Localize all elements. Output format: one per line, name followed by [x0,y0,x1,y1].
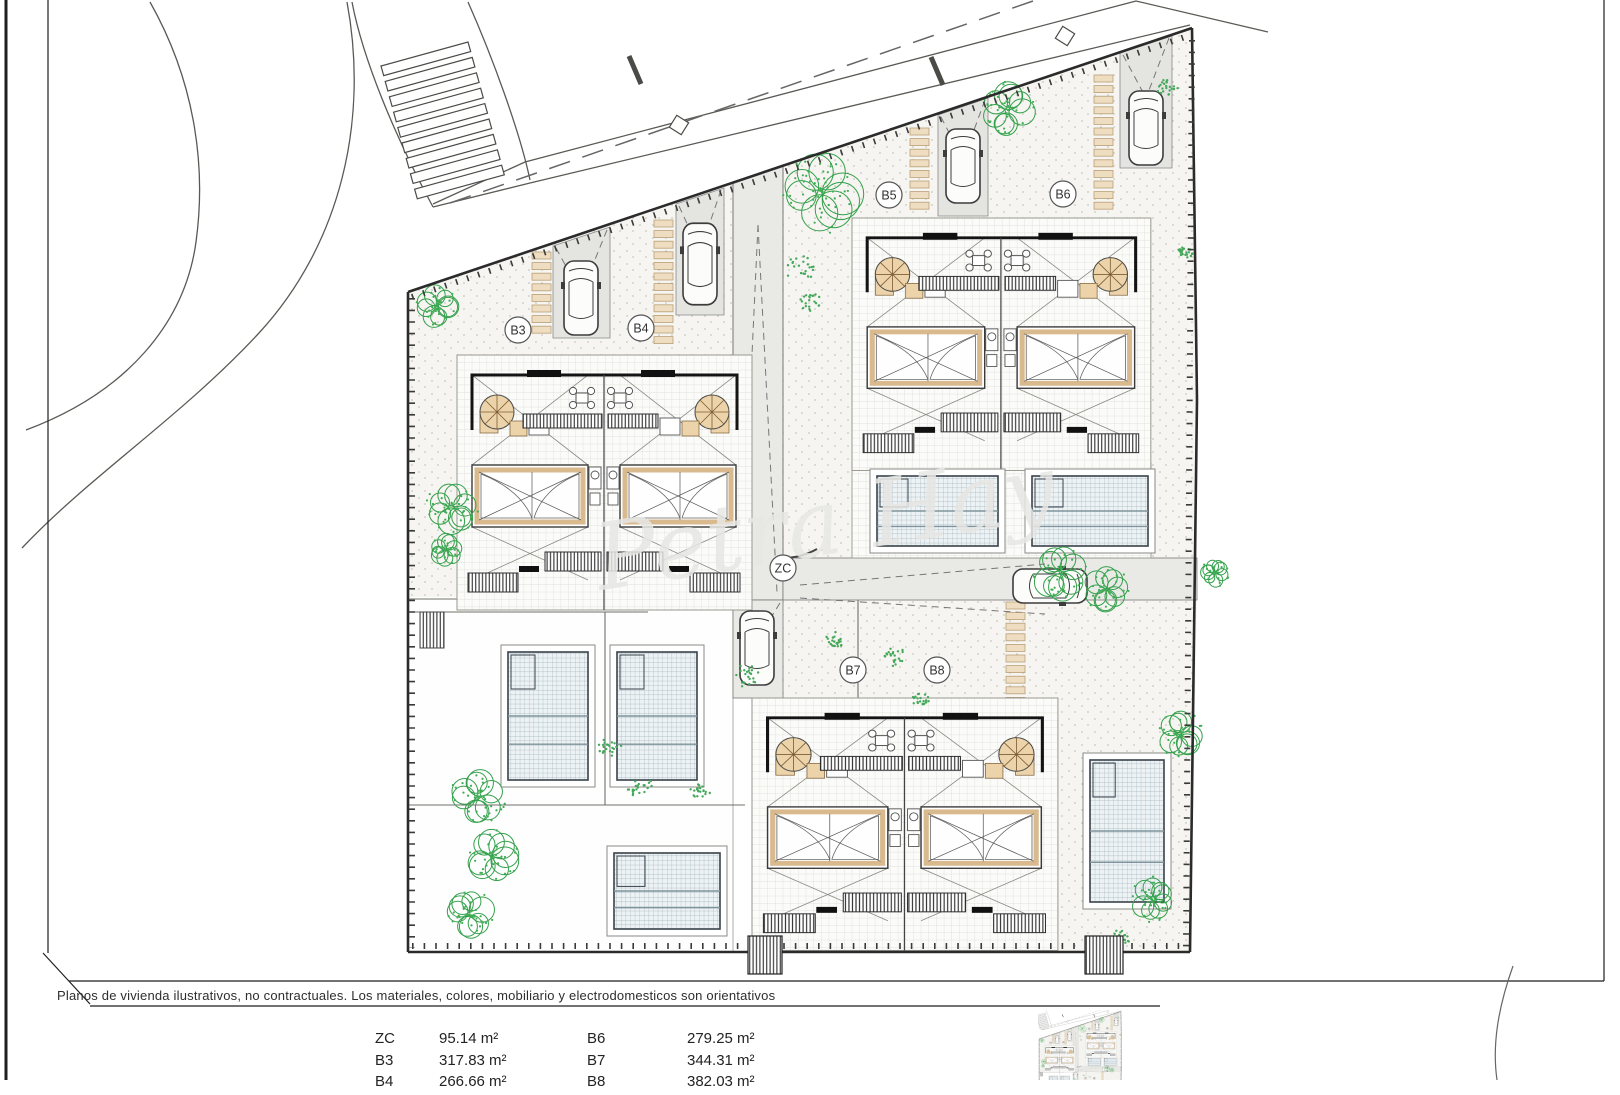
building-b5-b6 [852,218,1151,470]
stepping-stone [1094,86,1113,93]
tree-icon [1201,560,1229,587]
building-b7-b8 [752,698,1058,950]
area-label: B3 [375,1052,439,1074]
stepping-stone [532,273,551,280]
stepping-stone [654,326,673,333]
stepping-stone [910,202,929,209]
svg-text:B5: B5 [881,188,896,202]
stepping-stone [1094,149,1113,156]
stepping-stone [1006,687,1025,694]
area-label: B6 [587,1030,687,1052]
area-label: B8 [587,1073,687,1095]
area-value: 95.14 m² [439,1030,587,1052]
stepping-stone [1094,117,1113,124]
stepping-stone [910,170,929,177]
page-curl-line [1495,966,1513,1080]
area-value: 382.03 m² [687,1073,847,1095]
stepping-stone [1094,128,1113,135]
area-value: 317.83 m² [439,1052,587,1074]
stepping-stone [532,326,551,333]
stepping-stone [532,263,551,270]
stepping-stone [1094,170,1113,177]
pool [610,645,704,787]
stepping-stone [654,315,673,322]
plot-label-b8: B8 [924,657,950,683]
mini-site-plan [1038,1010,1122,1080]
area-value: 344.31 m² [687,1052,847,1074]
svg-text:B6: B6 [1055,187,1070,201]
svg-text:B3: B3 [510,323,525,337]
plot-label-b7: B7 [840,657,866,683]
stepping-stone [910,192,929,199]
site-plan-sheet: B3 B4 B5 B6 B7 B8 ZC Petra Hay [0,0,1620,1080]
plot-label-b3: B3 [505,317,531,343]
area-label: ZC [375,1030,439,1052]
stepping-stone [1094,96,1113,103]
stepping-stone [1094,139,1113,146]
svg-text:B7: B7 [845,663,860,677]
pool [607,846,727,936]
site-plan-drawing: B3 B4 B5 B6 B7 B8 ZC [22,1,1268,974]
stepping-stone [654,231,673,238]
roundabout-inner-curve [26,2,200,430]
stepping-stone [910,149,929,156]
stepping-stone [910,139,929,146]
stepping-stone [654,220,673,227]
stepping-stone [910,160,929,167]
stepping-stone [654,337,673,344]
stepping-stone [1006,655,1025,662]
stepping-stone [654,262,673,269]
area-value: 266.66 m² [439,1073,587,1095]
stepping-stone [532,294,551,301]
stepping-stone [654,284,673,291]
stepping-stone [1094,160,1113,167]
plot-label-b5: B5 [876,182,902,208]
stepping-stone [532,316,551,323]
car-icon [943,129,983,203]
plot-label-b6: B6 [1050,181,1076,207]
car-icon [1126,91,1166,165]
area-table: ZC 95.14 m² B6 279.25 m² B3 317.83 m² B7… [375,1030,847,1095]
car-icon [1013,566,1087,606]
stepping-stone [1094,75,1113,82]
stepping-stone [1006,676,1025,683]
street-corner-edge [1136,1,1268,32]
stepping-stone [654,294,673,301]
stepping-stone [532,305,551,312]
pedestrian-crossing [381,42,504,199]
stepping-stone [1094,107,1113,114]
stepping-stone [654,273,673,280]
car-icon [680,223,720,304]
stepping-stone [1006,666,1025,673]
stepping-stone [910,181,929,188]
area-label: B7 [587,1052,687,1074]
car-icon [561,261,601,335]
stepping-stone [654,305,673,312]
area-value: 279.25 m² [687,1030,847,1052]
stepping-stone [1006,613,1025,620]
plot-label-b4: B4 [628,315,654,341]
area-label: B4 [375,1073,439,1095]
disclaimer-text: Planos de vivienda ilustrativos, no cont… [57,988,1157,1003]
stepping-stone [532,284,551,291]
stepping-stone [1094,192,1113,199]
stepping-stone [654,241,673,248]
svg-text:B4: B4 [633,321,648,335]
stepping-stone [1094,181,1113,188]
car-icon [737,611,777,685]
stepping-stone [1006,644,1025,651]
stepping-stone [654,252,673,259]
stepping-stone [1006,623,1025,630]
svg-text:B8: B8 [929,663,944,677]
stepping-stone [1094,202,1113,209]
stepping-stone [1006,634,1025,641]
pool [501,645,595,787]
